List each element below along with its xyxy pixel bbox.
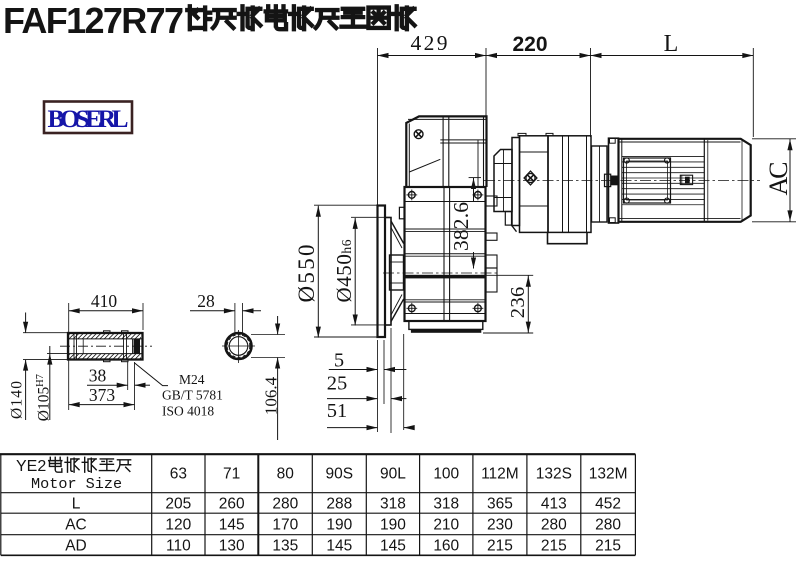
svg-text:28: 28 — [197, 291, 215, 311]
svg-text:L: L — [72, 496, 81, 513]
svg-text:145: 145 — [380, 538, 406, 555]
svg-text:AC: AC — [764, 162, 793, 196]
svg-text:215: 215 — [595, 538, 621, 555]
svg-text:YE2: YE2 — [16, 458, 46, 475]
svg-text:205: 205 — [165, 496, 191, 513]
svg-text:63: 63 — [170, 466, 187, 483]
svg-text:Ø105: Ø105 — [36, 387, 53, 422]
svg-text:90S: 90S — [326, 466, 354, 483]
svg-text:215: 215 — [541, 538, 567, 555]
svg-text:BOSERL: BOSERL — [48, 104, 129, 133]
svg-text:112M: 112M — [481, 466, 519, 483]
svg-text:190: 190 — [380, 517, 406, 534]
svg-text:132M: 132M — [589, 466, 628, 483]
svg-text:106.4: 106.4 — [262, 376, 281, 415]
svg-text:280: 280 — [541, 517, 567, 534]
svg-text:AC: AC — [65, 517, 87, 534]
svg-text:FAF127R77: FAF127R77 — [3, 0, 184, 41]
svg-text:410: 410 — [91, 291, 118, 311]
svg-text:190: 190 — [326, 517, 352, 534]
svg-text:215: 215 — [487, 538, 513, 555]
svg-text:71: 71 — [223, 466, 240, 483]
svg-text:25: 25 — [327, 373, 348, 395]
svg-text:GB/T 5781: GB/T 5781 — [162, 388, 223, 403]
svg-text:145: 145 — [326, 538, 352, 555]
svg-text:90L: 90L — [380, 466, 406, 483]
svg-text:318: 318 — [380, 496, 406, 513]
svg-text:135: 135 — [272, 538, 298, 555]
svg-text:AD: AD — [65, 538, 87, 555]
svg-text:H7: H7 — [35, 374, 46, 387]
svg-text:413: 413 — [541, 496, 567, 513]
svg-text:373: 373 — [89, 385, 116, 405]
svg-text:160: 160 — [433, 538, 459, 555]
svg-text:Motor Size: Motor Size — [31, 475, 122, 493]
svg-text:365: 365 — [487, 496, 513, 513]
svg-text:382.6: 382.6 — [449, 202, 473, 251]
svg-text:318: 318 — [433, 496, 459, 513]
svg-text:210: 210 — [433, 517, 459, 534]
svg-text:Ø550: Ø550 — [294, 245, 319, 303]
svg-text:Ø140: Ø140 — [9, 381, 26, 419]
svg-text:L: L — [664, 31, 679, 57]
svg-text:452: 452 — [595, 496, 621, 513]
svg-text:ISO 4018: ISO 4018 — [162, 404, 214, 419]
svg-text:230: 230 — [487, 517, 513, 534]
svg-text:38: 38 — [89, 366, 107, 386]
svg-text:145: 145 — [219, 517, 245, 534]
svg-text:236: 236 — [507, 287, 529, 319]
svg-text:M24: M24 — [179, 372, 205, 387]
svg-text:130: 130 — [219, 538, 245, 555]
svg-text:132S: 132S — [536, 466, 572, 483]
svg-text:280: 280 — [272, 496, 298, 513]
svg-text:220: 220 — [513, 33, 548, 56]
svg-text:51: 51 — [327, 400, 348, 422]
svg-text:100: 100 — [433, 466, 459, 483]
svg-text:5: 5 — [334, 350, 344, 372]
svg-text:288: 288 — [326, 496, 352, 513]
svg-text:120: 120 — [165, 517, 191, 534]
svg-text:260: 260 — [219, 496, 245, 513]
svg-text:429: 429 — [411, 31, 448, 55]
svg-text:80: 80 — [277, 466, 295, 483]
svg-text:280: 280 — [595, 517, 621, 534]
svg-text:110: 110 — [166, 538, 191, 555]
svg-text:170: 170 — [272, 517, 298, 534]
